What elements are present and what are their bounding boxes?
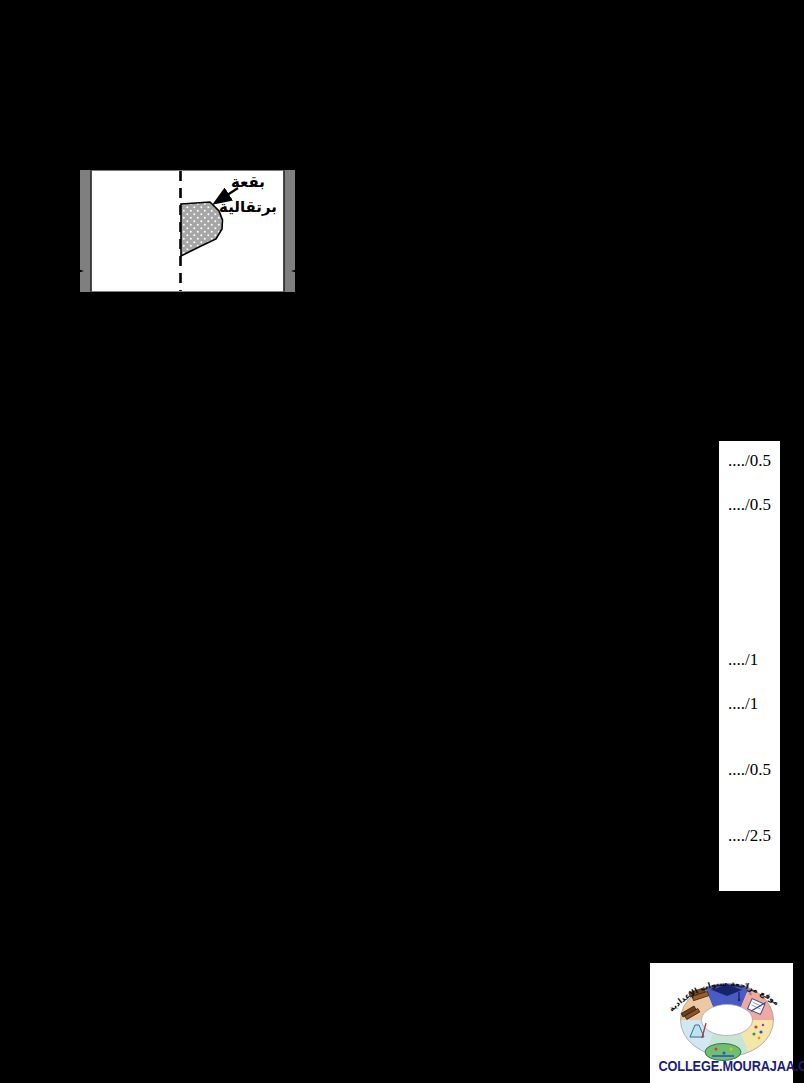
- score-field: ..../2.5: [719, 827, 771, 845]
- score-field: ..../1: [719, 695, 758, 713]
- spot-label: بقعة برتقالية: [213, 170, 283, 220]
- left-edge-bar: [80, 171, 91, 292]
- spot-label-line1: بقعة: [213, 170, 283, 195]
- ring-inner-hole: [702, 1005, 753, 1036]
- exam-page: بقعة برتقالية ..../0.5 ..../0.5 ..../1 .…: [0, 0, 804, 1083]
- score-field: ..../0.5: [719, 452, 771, 470]
- score-column: ..../0.5 ..../0.5 ..../1 ..../1 ..../0.5…: [717, 439, 782, 893]
- score-field: ..../0.5: [719, 761, 771, 779]
- spot-label-line2: برتقالية: [213, 195, 283, 220]
- site-url-text: COLLEGE.MOURAJAA.COM: [659, 1058, 785, 1074]
- score-field: ..../0.5: [719, 496, 771, 514]
- brand-logo: موقع مراجعة سنوات الإعدادية COLLEGE.MOUR…: [650, 963, 793, 1083]
- logo-ring: موقع مراجعة سنوات الإعدادية: [650, 963, 793, 1059]
- right-edge-bar: [285, 171, 296, 292]
- score-field: ..../1: [719, 651, 758, 669]
